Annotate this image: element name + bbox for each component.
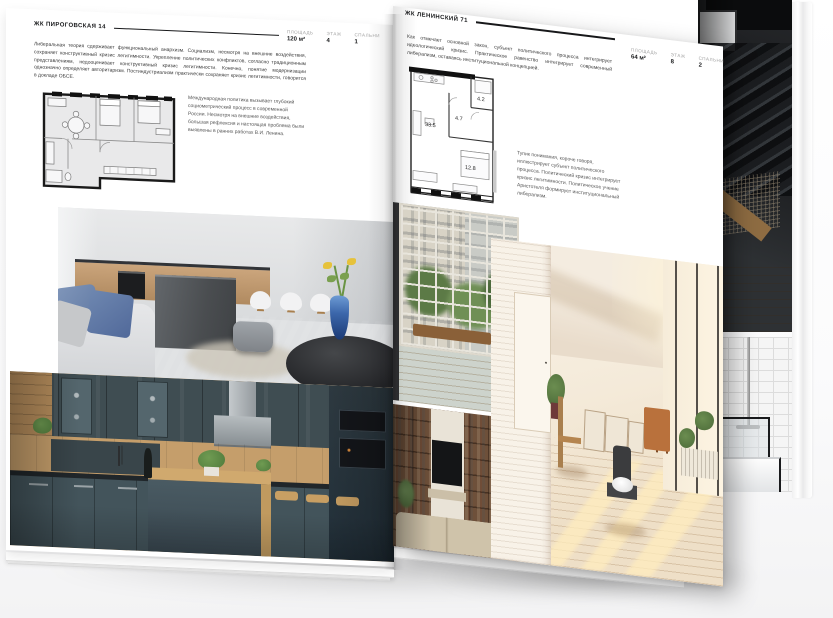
window-frame — [675, 261, 677, 492]
meta-floor: ЭТАЖ 8 — [671, 52, 686, 66]
radiator — [681, 447, 718, 480]
leaf — [340, 273, 349, 280]
leaf — [327, 275, 336, 282]
room-area-bath: 4.2 — [477, 96, 485, 103]
grey-pouf — [233, 321, 273, 353]
left-page-title: ЖК ПИРОГОВСКАЯ 14 — [34, 21, 106, 30]
header-rule — [114, 27, 279, 36]
yellow-flower — [347, 258, 356, 265]
left-page-caption: Международная политика вызывает глубокий… — [188, 94, 306, 139]
dark-chair — [607, 444, 637, 524]
room-area-bedroom: 12.8 — [465, 165, 476, 172]
right-page-title: ЖК ЛЕНИНСКИЙ 71 — [405, 10, 468, 24]
window-frame — [393, 202, 399, 401]
chair-back — [558, 397, 563, 468]
meta-area: ПЛОЩАДЬ 120 м² — [287, 29, 314, 43]
right-floor-plan: 33.5 4.7 4.2 12.8 — [401, 59, 503, 214]
blue-pillow — [86, 290, 134, 339]
vignette — [10, 371, 394, 562]
right-page: ЖК ЛЕНИНСКИЙ 71 ПЛОЩАДЬ 64 м² ЭТАЖ 8 СПА… — [393, 6, 723, 587]
left-page-header: ЖК ПИРОГОВСКАЯ 14 ПЛОЩАДЬ 120 м² ЭТАЖ 4 … — [34, 18, 380, 46]
right-page-meta: ПЛОЩАДЬ 64 м² ЭТАЖ 8 СПАЛЬНИ 2 — [631, 47, 724, 71]
wooden-chair — [558, 397, 581, 470]
white-door — [514, 292, 551, 433]
tv-screen — [432, 440, 462, 486]
header-rule — [476, 21, 615, 40]
meta-area: ПЛОЩАДЬ 64 м² — [631, 47, 658, 63]
terracotta-lounge-chair — [644, 407, 670, 452]
meta-floor: ЭТАЖ 4 — [327, 31, 342, 44]
page-edge-sheets — [792, 2, 812, 498]
room-area-living: 33.5 — [425, 122, 436, 129]
concrete-island — [155, 275, 236, 352]
leaning-picture-frame — [583, 409, 605, 452]
magazine-spread-mockup: ЖК ПИРОГОВСКАЯ 14 ПЛОЩАДЬ 120 м² ЭТАЖ 4 … — [0, 0, 833, 618]
left-page-meta: ПЛОЩАДЬ 120 м² ЭТАЖ 4 СПАЛЬНИ 1 — [287, 29, 380, 46]
meta-bedrooms: СПАЛЬНИ 1 — [355, 32, 380, 46]
meta-bedrooms: СПАЛЬНИ 2 — [699, 56, 724, 72]
white-chair — [280, 292, 302, 311]
room-area-hall: 4.7 — [455, 116, 463, 123]
sunlit-room-photo — [491, 238, 723, 586]
right-page-caption: Тупик понимания, короче говоря, иллюстри… — [517, 149, 621, 210]
shower-pipe — [747, 337, 750, 427]
left-page: ЖК ПИРОГОВСКАЯ 14 ПЛОЩАДЬ 120 м² ЭТАЖ 4 … — [6, 8, 394, 567]
kitchen-island-photo — [58, 207, 394, 388]
vignette — [393, 404, 431, 551]
left-floor-plan — [38, 83, 180, 195]
green-kitchen-photo — [10, 371, 394, 562]
